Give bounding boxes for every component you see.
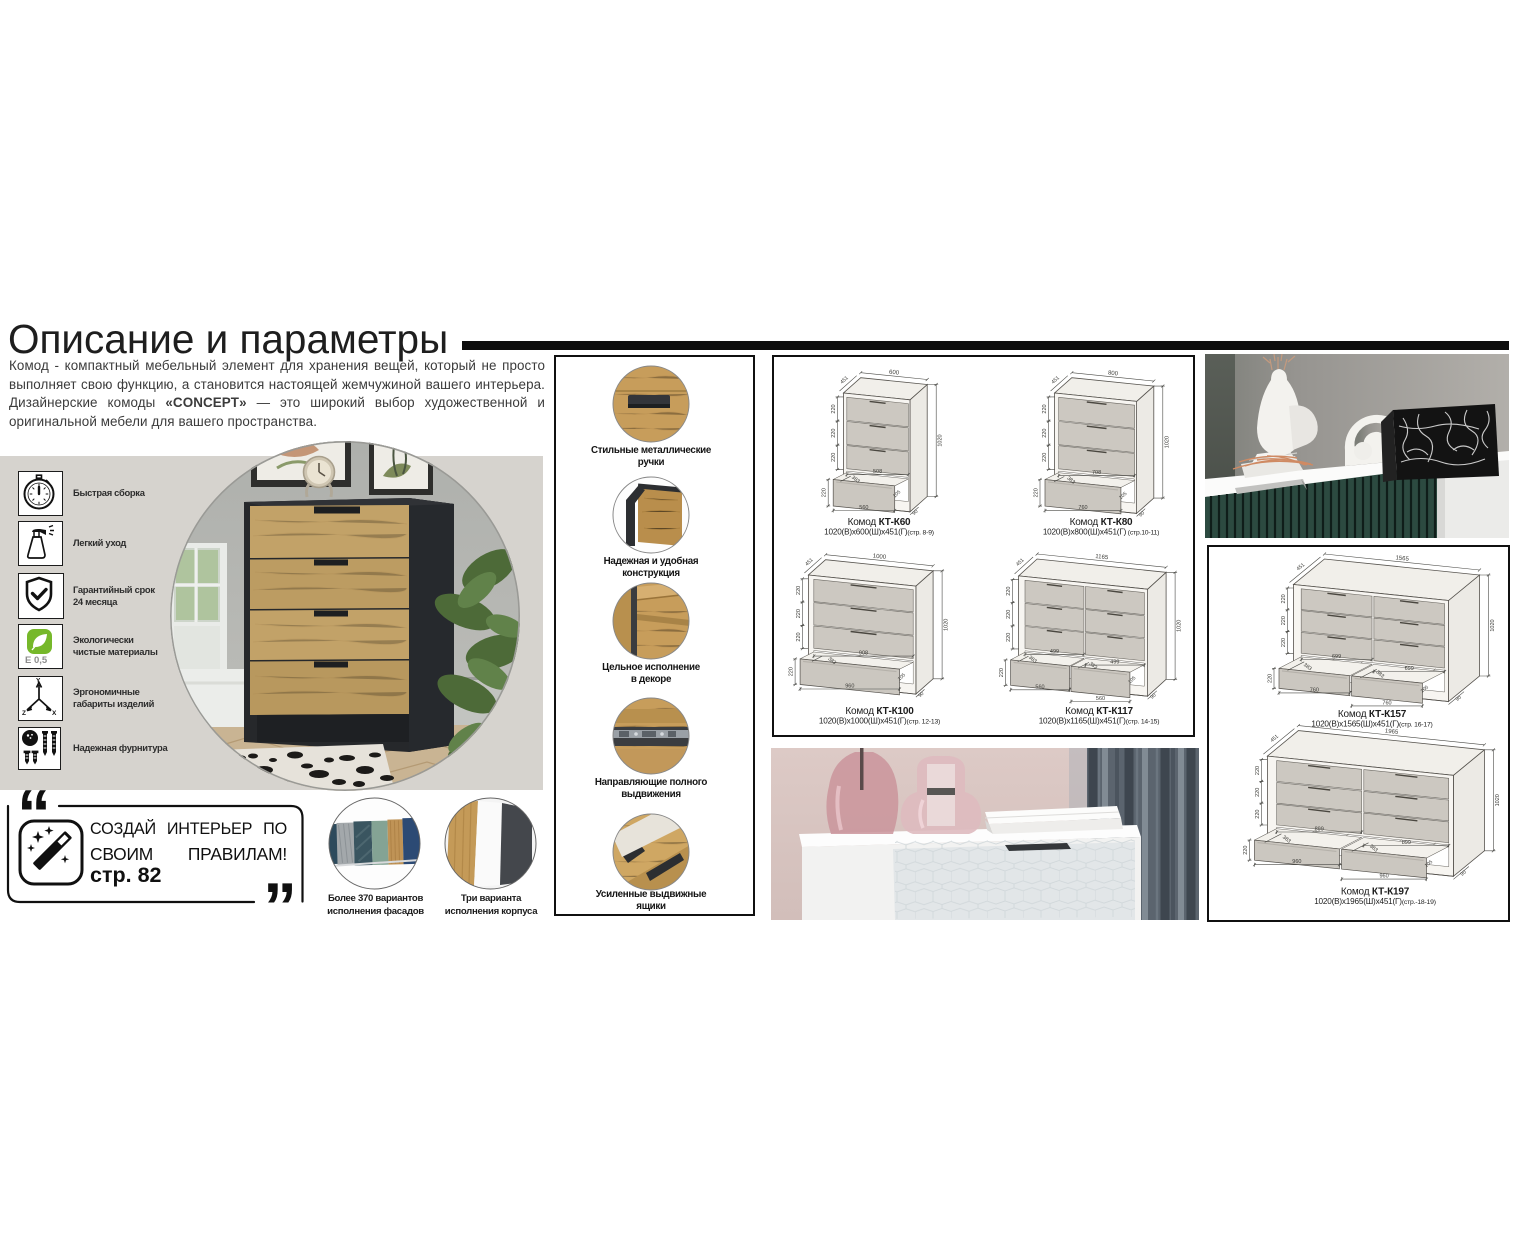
- svg-text:560: 560: [859, 505, 868, 511]
- svg-text:220: 220: [1034, 488, 1040, 497]
- svg-text:220: 220: [1255, 788, 1261, 797]
- svg-text:X: X: [52, 710, 57, 717]
- svg-text:220: 220: [1268, 674, 1274, 683]
- svg-text:760: 760: [1078, 505, 1087, 511]
- svg-text:”: ”: [263, 869, 297, 930]
- svg-text:451: 451: [804, 557, 815, 567]
- svg-text:220: 220: [1042, 429, 1048, 438]
- svg-text:708: 708: [1092, 470, 1101, 476]
- svg-text:960: 960: [845, 684, 854, 690]
- svg-text:760: 760: [1382, 700, 1391, 706]
- svg-text:220: 220: [789, 667, 795, 676]
- svg-text:220: 220: [1281, 638, 1287, 647]
- svg-text:220: 220: [1281, 616, 1287, 625]
- svg-text:Комод КТ-К80: Комод КТ-К80: [1070, 517, 1133, 528]
- svg-text:220: 220: [999, 668, 1005, 677]
- svg-text:220: 220: [822, 488, 828, 497]
- svg-text:800: 800: [1108, 370, 1119, 377]
- svg-text:451: 451: [1269, 734, 1280, 744]
- svg-text:220: 220: [1255, 810, 1261, 819]
- svg-text:220: 220: [1006, 633, 1012, 642]
- svg-text:220: 220: [1006, 587, 1012, 596]
- svg-text:Комод КТ-К117: Комод КТ-К117: [1065, 706, 1133, 717]
- svg-text:Комод КТ-К157: Комод КТ-К157: [1338, 709, 1407, 720]
- svg-text:220: 220: [1281, 594, 1287, 603]
- svg-text:600: 600: [889, 370, 900, 377]
- svg-text:1020: 1020: [944, 619, 950, 631]
- svg-text:1020: 1020: [1164, 436, 1170, 448]
- svg-text:1020(В)x1165(Ш)x451(Г)(стр. 14: 1020(В)x1165(Ш)x451(Г)(стр. 14-15): [1039, 717, 1160, 726]
- svg-text:760: 760: [1310, 687, 1319, 693]
- svg-text:1020: 1020: [1177, 620, 1183, 632]
- svg-text:699: 699: [1332, 654, 1341, 660]
- svg-text:220: 220: [831, 453, 837, 462]
- svg-text:1020(В)x1565(Ш)x451(Г)(стр. 16: 1020(В)x1565(Ш)x451(Г)(стр. 16-17): [1311, 720, 1432, 729]
- svg-text:220: 220: [1042, 404, 1048, 413]
- svg-text:220: 220: [831, 429, 837, 438]
- svg-text:E 0,5: E 0,5: [25, 655, 48, 665]
- svg-text:220: 220: [1255, 766, 1261, 775]
- svg-text:499: 499: [1110, 660, 1119, 666]
- svg-text:220: 220: [1042, 453, 1048, 462]
- svg-text:Комод КТ-К100: Комод КТ-К100: [845, 706, 914, 717]
- svg-text:451: 451: [839, 375, 850, 385]
- svg-text:220: 220: [796, 609, 802, 618]
- svg-text:960: 960: [1380, 874, 1389, 880]
- svg-text:Z: Z: [22, 710, 26, 717]
- svg-text:699: 699: [1405, 666, 1414, 672]
- svg-text:220: 220: [1006, 610, 1012, 619]
- svg-text:1020(В)x800(Ш)x451(Г) (стр.10-: 1020(В)x800(Ш)x451(Г) (стр.10-11): [1043, 528, 1159, 537]
- svg-text:451: 451: [1015, 557, 1026, 567]
- svg-text:899: 899: [1402, 840, 1411, 846]
- svg-text:220: 220: [1243, 846, 1249, 855]
- svg-text:1020(В)x1000(Ш)x451(Г)(стр. 12: 1020(В)x1000(Ш)x451(Г)(стр. 12-13): [819, 717, 940, 726]
- svg-text:1020: 1020: [1490, 619, 1496, 631]
- svg-text:960: 960: [1292, 859, 1301, 865]
- svg-text:220: 220: [796, 632, 802, 641]
- svg-text:1020: 1020: [1495, 794, 1501, 806]
- svg-text:220: 220: [831, 404, 837, 413]
- svg-text:Комод КТ-К60: Комод КТ-К60: [848, 517, 911, 528]
- svg-text:1020(В)x1965(Ш)x451(Г)(стр.-18: 1020(В)x1965(Ш)x451(Г)(стр.-18-19): [1314, 897, 1436, 906]
- svg-text:220: 220: [796, 586, 802, 595]
- svg-text:908: 908: [859, 651, 868, 657]
- svg-text:451: 451: [1296, 562, 1307, 572]
- svg-text:Y: Y: [36, 678, 41, 685]
- svg-text:508: 508: [873, 469, 882, 475]
- svg-text:451: 451: [1050, 375, 1061, 385]
- svg-text:560: 560: [1096, 696, 1105, 702]
- svg-text:1020(В)x600(Ш)x451(Г)(стр. 8-9: 1020(В)x600(Ш)x451(Г)(стр. 8-9): [824, 528, 934, 537]
- svg-text:Комод КТ-К197: Комод КТ-К197: [1341, 887, 1410, 898]
- svg-text:1020: 1020: [938, 434, 944, 446]
- svg-text:899: 899: [1315, 827, 1324, 833]
- svg-text:560: 560: [1035, 684, 1044, 690]
- svg-text:499: 499: [1050, 649, 1059, 655]
